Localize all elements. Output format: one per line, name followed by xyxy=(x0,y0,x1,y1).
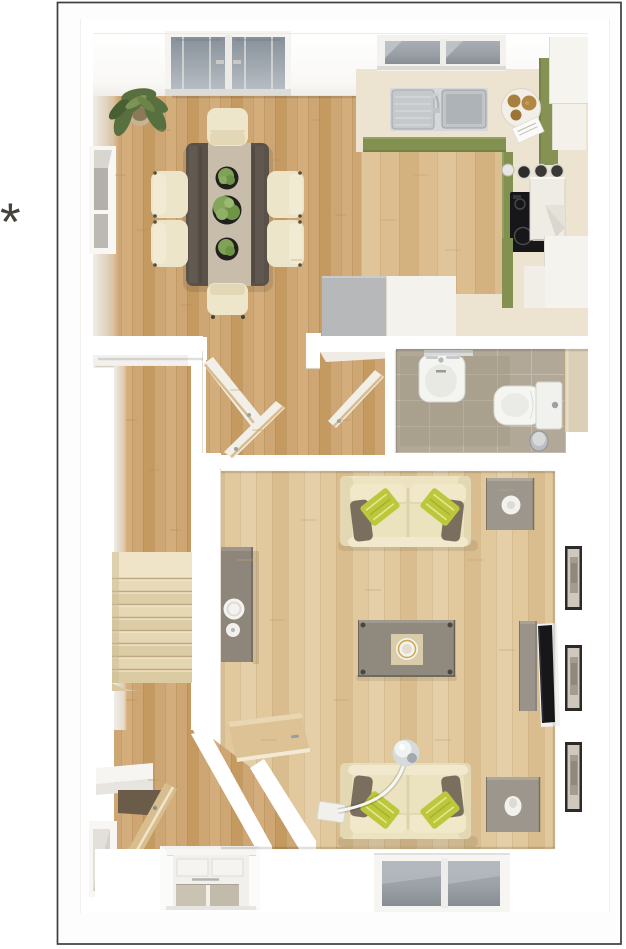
svg-text:*: * xyxy=(0,193,21,252)
